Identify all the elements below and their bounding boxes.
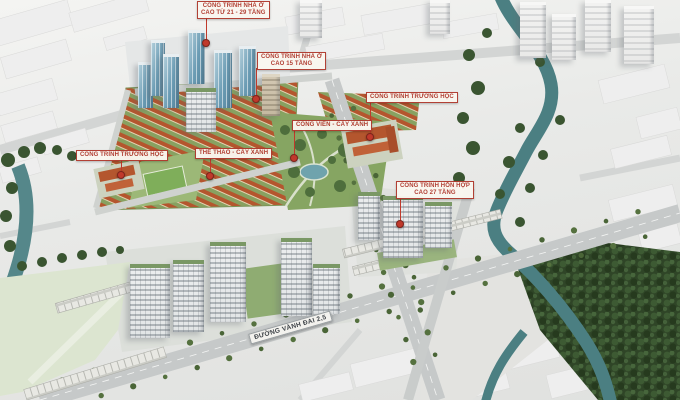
callout-sports: THỂ THAO - CÂY XANH xyxy=(195,148,272,159)
map-pin-housing-mid xyxy=(252,95,260,103)
callout-mixed-use: CÔNG TRÌNH HỖN HỢP CAO 27 TẦNG xyxy=(396,181,474,199)
callout-text: CÔNG TRÌNH NHÀ Ở xyxy=(201,3,266,10)
callout-text: CAO 15 TẦNG xyxy=(261,61,322,68)
callout-text: CÔNG TRÌNH TRƯỜNG HỌC xyxy=(80,152,164,159)
leader-line-housing-mid xyxy=(256,68,257,97)
map-pin-park xyxy=(290,154,298,162)
callout-text: CAO TỪ 21 - 29 TẦNG xyxy=(201,10,266,17)
callout-text: CAO 27 TẦNG xyxy=(400,190,470,197)
callout-housing-15: CÔNG TRÌNH NHÀ Ở CAO 15 TẦNG xyxy=(257,52,326,70)
callout-text: THỂ THAO - CÂY XANH xyxy=(199,150,268,157)
callout-park: CÔNG VIÊN - CÂY XANH xyxy=(292,120,372,131)
leader-line-mixed-use xyxy=(400,197,401,222)
masterplan-rendering: CÔNG TRÌNH NHÀ Ở CAO TỪ 21 - 29 TẦNG CÔN… xyxy=(0,0,680,400)
callout-text: CÔNG TRÌNH HỖN HỢP xyxy=(400,183,470,190)
leader-line-park xyxy=(294,130,295,156)
callout-school-left: CÔNG TRÌNH TRƯỜNG HỌC xyxy=(76,150,168,161)
callout-school-right: CÔNG TRÌNH TRƯỜNG HỌC xyxy=(366,92,458,103)
map-pin-sports xyxy=(206,172,214,180)
callout-housing-21-29: CÔNG TRÌNH NHÀ Ở CAO TỪ 21 - 29 TẦNG xyxy=(197,1,270,19)
map-pin-school-left xyxy=(117,171,125,179)
map-pin-school-right xyxy=(366,133,374,141)
site-plan-graphic xyxy=(0,0,680,400)
callout-text: CÔNG TRÌNH TRƯỜNG HỌC xyxy=(370,94,454,101)
callout-text: CÔNG VIÊN - CÂY XANH xyxy=(296,122,368,129)
callout-text: CÔNG TRÌNH NHÀ Ở xyxy=(261,54,322,61)
map-pin-housing-tall xyxy=(202,39,210,47)
map-pin-mixed-use xyxy=(396,220,404,228)
